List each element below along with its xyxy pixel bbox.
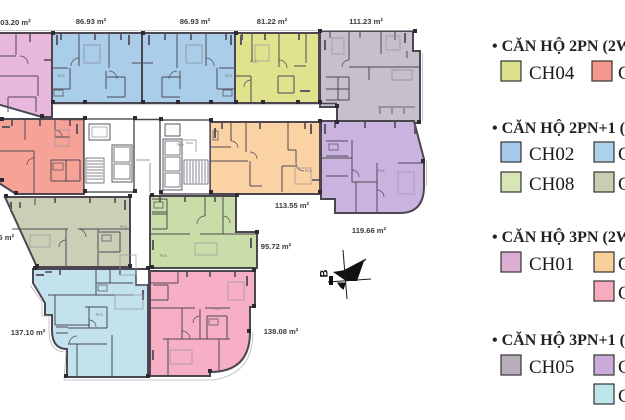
svg-text:• CĂN HỘ 2PN (2WC): • CĂN HỘ 2PN (2WC) <box>492 36 625 55</box>
svg-text:111.23 m²: 111.23 m² <box>349 17 383 26</box>
svg-text:86.93 m²: 86.93 m² <box>180 17 211 26</box>
svg-text:P0.5: P0.5 <box>160 254 167 258</box>
svg-text:P0.5: P0.5 <box>305 169 312 173</box>
svg-text:P0.5: P0.5 <box>120 225 127 229</box>
svg-text:P0.5: P0.5 <box>58 74 65 78</box>
svg-text:81.22 m²: 81.22 m² <box>257 17 288 26</box>
svg-text:CH01: CH01 <box>529 254 574 275</box>
svg-text:CH04: CH04 <box>529 63 575 84</box>
svg-text:103.20 m²: 103.20 m² <box>0 18 31 27</box>
svg-text:113.55 m²: 113.55 m² <box>275 201 310 210</box>
svg-text:137.10 m²: 137.10 m² <box>11 328 46 337</box>
svg-text:138.08 m²: 138.08 m² <box>264 327 299 336</box>
svg-text:CH10: CH10 <box>618 283 625 304</box>
svg-text:• CĂN HỘ 3PN+1 (: • CĂN HỘ 3PN+1 ( <box>492 330 625 349</box>
svg-text:P0.5: P0.5 <box>225 74 232 78</box>
svg-text:P0.5: P0.5 <box>214 307 221 311</box>
svg-text:P0.5: P0.5 <box>177 143 184 147</box>
svg-text:P0.5: P0.5 <box>250 60 257 64</box>
svg-text:CH03: CH03 <box>618 144 625 165</box>
svg-text:P0.5: P0.5 <box>378 169 385 173</box>
svg-text:CH08: CH08 <box>529 174 574 195</box>
svg-text:6 m²: 6 m² <box>0 233 14 242</box>
svg-text:CH06: CH06 <box>618 63 625 84</box>
svg-text:• CĂN HỘ 2PN+1 (2: • CĂN HỘ 2PN+1 (2 <box>492 118 625 137</box>
svg-text:95.72 m²: 95.72 m² <box>261 242 292 251</box>
svg-text:• CĂN HỘ 3PN (2W: • CĂN HỘ 3PN (2W <box>492 227 625 246</box>
svg-text:CH09: CH09 <box>618 174 625 195</box>
svg-text:119.66 m²: 119.66 m² <box>352 226 387 235</box>
svg-text:B: B <box>319 270 331 278</box>
svg-text:CH05: CH05 <box>529 357 574 378</box>
svg-text:86.93 m²: 86.93 m² <box>76 17 107 26</box>
svg-text:CH07: CH07 <box>618 254 625 275</box>
svg-text:CH11: CH11 <box>618 357 625 378</box>
svg-text:P0.5: P0.5 <box>96 313 103 317</box>
svg-text:CH12: CH12 <box>618 386 625 407</box>
svg-text:CH02: CH02 <box>529 144 574 165</box>
